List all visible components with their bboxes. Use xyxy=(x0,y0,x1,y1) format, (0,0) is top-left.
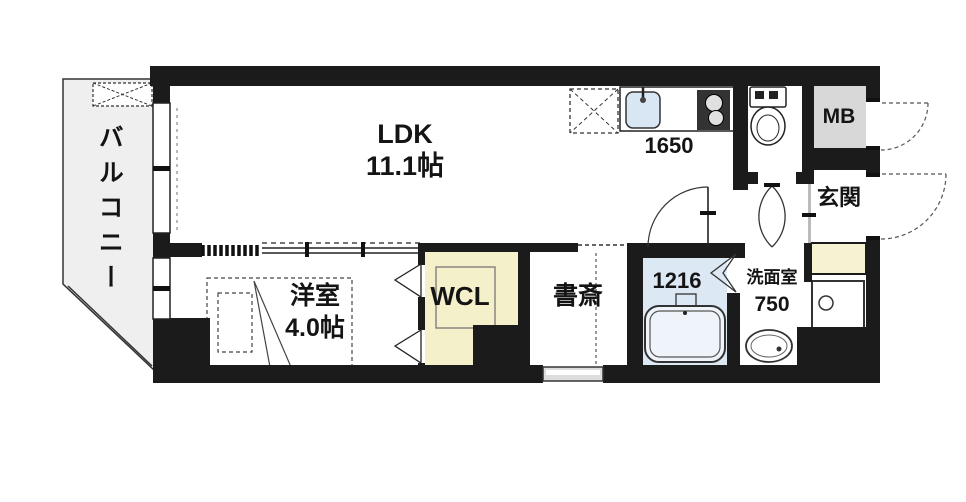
washing-machine-space xyxy=(812,281,864,329)
western-room-label: 洋室 xyxy=(250,283,380,309)
kitchen-counter-size-label: 1650 xyxy=(628,134,710,157)
entrance-label: 玄関 xyxy=(808,186,870,209)
study-label: 書斎 xyxy=(528,283,628,309)
window-study-bottom xyxy=(543,367,603,381)
washroom-size-label: 750 xyxy=(736,294,808,316)
shoe-cabinet xyxy=(810,243,866,274)
bathroom-size-label: 1216 xyxy=(641,269,713,292)
hall-door-swing xyxy=(648,187,716,247)
floor-plan-drawing xyxy=(0,0,966,502)
refrigerator-space-icon xyxy=(570,89,618,133)
washbasin-icon xyxy=(746,330,792,362)
meter-box-label: MB xyxy=(810,106,868,128)
vent-grille-band xyxy=(203,245,257,256)
ldk-label: LDK xyxy=(340,120,470,148)
entrance-door-swing xyxy=(866,173,946,240)
washroom-label: 洗面室 xyxy=(736,269,808,287)
window-ldk-left xyxy=(153,103,170,233)
washer-tap-icon xyxy=(819,296,833,310)
toilet-icon xyxy=(750,87,786,145)
stove-icon xyxy=(697,90,730,130)
walk-in-closet-label: WCL xyxy=(425,283,495,310)
sliding-door-ldk-western xyxy=(262,242,420,257)
western-room-size-label: 4.0帖 xyxy=(250,315,380,341)
closet-corner-wall xyxy=(473,325,518,380)
ldk-size-label: 11.1帖 xyxy=(330,152,480,180)
meter-box-door-swing xyxy=(866,98,928,150)
balcony-label: バルコニー xyxy=(96,124,122,299)
balcony-hatch-box xyxy=(93,83,152,106)
closet-folding-doors xyxy=(395,264,421,363)
floor-plan: バルコニー LDK 11.1帖 1650 洋室 4.0帖 WCL 書斎 1216… xyxy=(0,0,966,502)
kitchen-counter-icon xyxy=(620,87,734,131)
window-western-room-left xyxy=(153,258,170,319)
